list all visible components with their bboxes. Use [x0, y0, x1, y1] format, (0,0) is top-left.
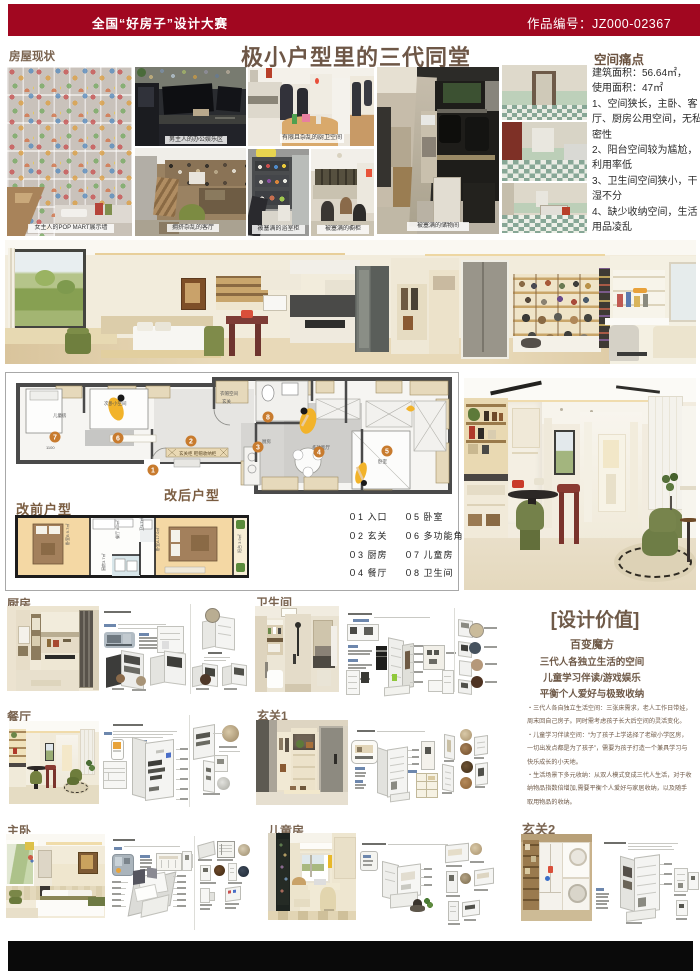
svg-text:玄关柜 鞋帽收纳柜: 玄关柜 鞋帽收纳柜 [179, 450, 217, 457]
svg-text:5: 5 [385, 449, 389, 456]
svg-text:餐厅 8.3㎡: 餐厅 8.3㎡ [114, 520, 120, 539]
svg-text:6: 6 [116, 436, 120, 443]
svg-text:8: 8 [266, 415, 270, 422]
svg-text:3: 3 [256, 445, 260, 452]
svg-text:厨房3.7㎡: 厨房3.7㎡ [100, 553, 106, 571]
svg-text:卧室A 17.0㎡: 卧室A 17.0㎡ [154, 528, 160, 551]
svg-text:衣帽空间: 衣帽空间 [220, 390, 238, 397]
svg-text:卧室: 卧室 [378, 458, 387, 465]
svg-text:1100: 1100 [46, 445, 55, 450]
svg-text:4: 4 [317, 450, 321, 457]
svg-text:儿童房: 儿童房 [53, 412, 67, 419]
svg-text:2: 2 [189, 439, 193, 446]
svg-text:次卧小空间: 次卧小空间 [104, 400, 127, 407]
svg-text:7: 7 [53, 435, 57, 442]
svg-text:卫1.7㎡: 卫1.7㎡ [138, 517, 144, 531]
svg-text:玄关: 玄关 [222, 398, 231, 405]
svg-text:卧室B 9.7㎡: 卧室B 9.7㎡ [64, 524, 70, 545]
svg-text:1: 1 [151, 468, 155, 475]
svg-text:阳台 3.9㎡: 阳台 3.9㎡ [236, 534, 242, 553]
svg-text:厨房: 厨房 [262, 438, 271, 445]
